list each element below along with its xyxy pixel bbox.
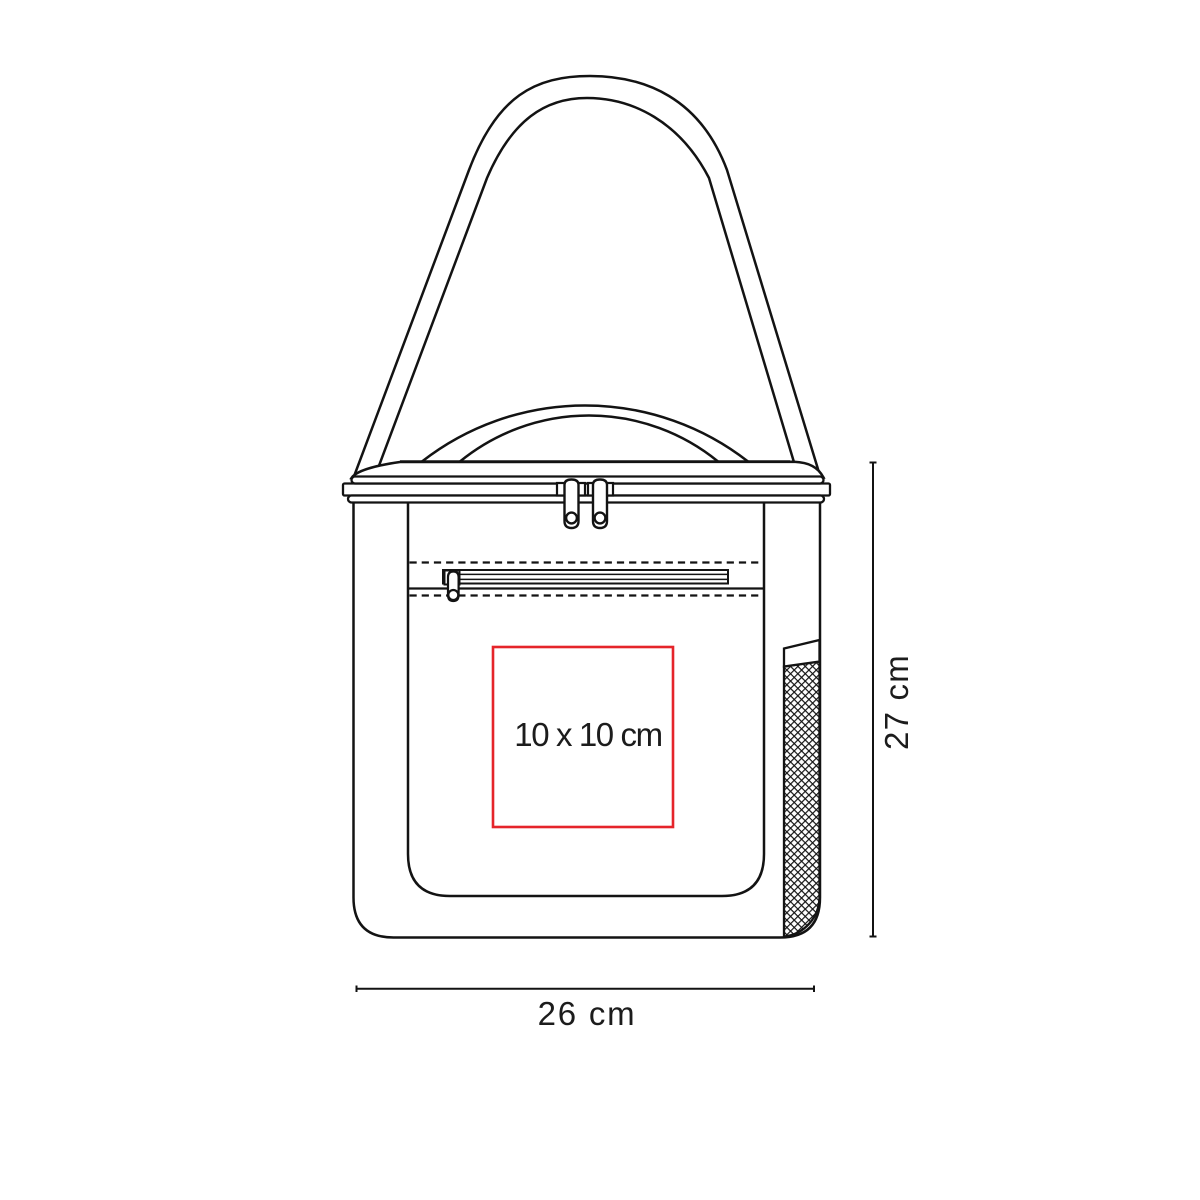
svg-text:27 cm: 27 cm xyxy=(878,654,915,750)
svg-text:10 x 10 cm: 10 x 10 cm xyxy=(514,716,661,753)
svg-text:26 cm: 26 cm xyxy=(538,995,637,1032)
